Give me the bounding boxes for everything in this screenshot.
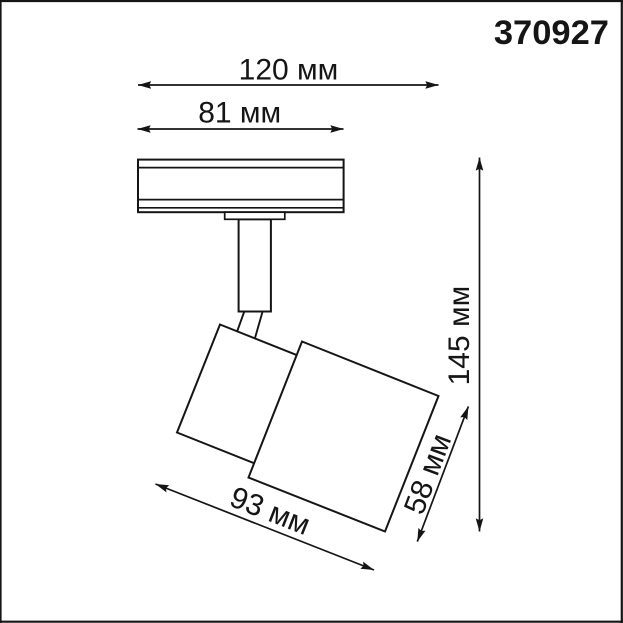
svg-text:370927: 370927 — [494, 14, 609, 52]
svg-text:81 мм: 81 мм — [198, 97, 281, 130]
svg-text:145 мм: 145 мм — [443, 286, 476, 386]
svg-text:120 мм: 120 мм — [239, 54, 339, 87]
